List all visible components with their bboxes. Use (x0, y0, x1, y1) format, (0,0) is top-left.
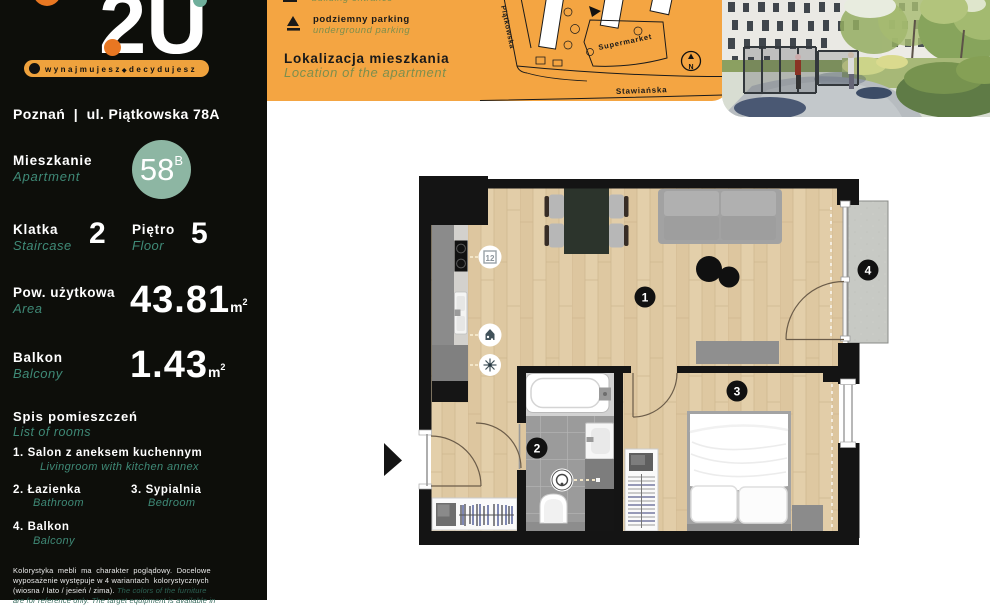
svg-text:2: 2 (534, 442, 541, 456)
svg-text:3: 3 (734, 385, 741, 399)
svg-text:Stawiańska: Stawiańska (616, 85, 668, 96)
svg-text:Piątkowska: Piątkowska (499, 5, 515, 50)
svg-text:12: 12 (486, 254, 495, 263)
svg-text:N: N (688, 64, 693, 71)
svg-text:1: 1 (642, 291, 649, 305)
svg-text:Supermarket: Supermarket (598, 32, 653, 52)
svg-text:4: 4 (865, 264, 872, 278)
